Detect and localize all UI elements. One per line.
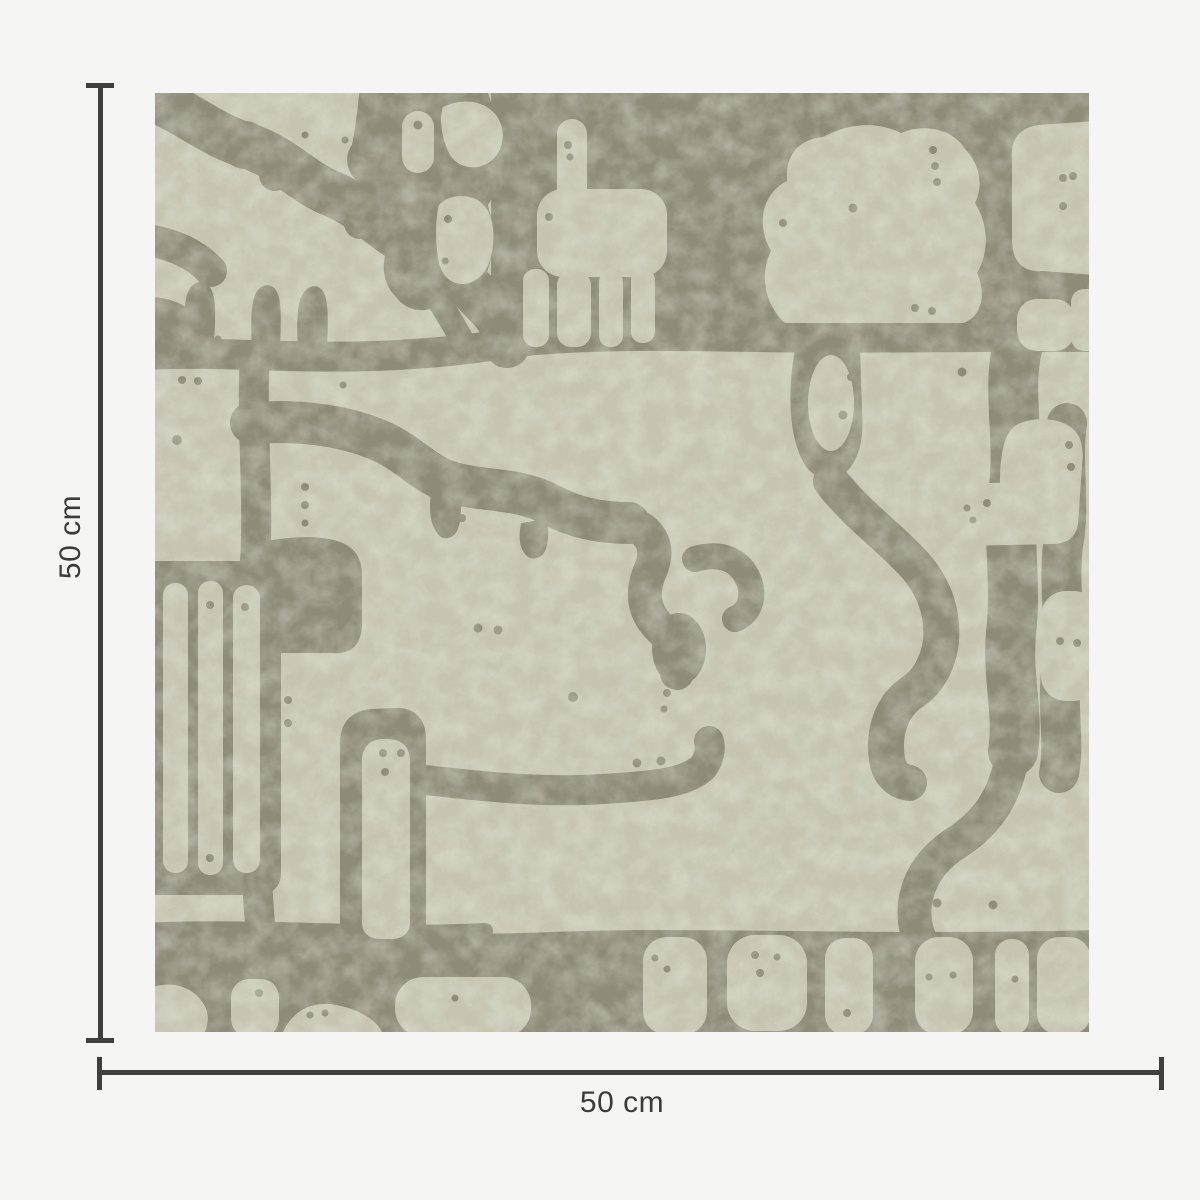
- width-dimension-right-cap: [1159, 1057, 1164, 1090]
- page-background: 50 cm 50 cm: [0, 0, 1200, 1200]
- height-dimension-line: [98, 85, 103, 1040]
- width-dimension-label: 50 cm: [580, 1086, 664, 1120]
- swatch-pattern-svg: [155, 93, 1089, 1032]
- wallpaper-swatch-image: [155, 93, 1089, 1032]
- width-dimension-line: [97, 1070, 1164, 1075]
- width-dimension-left-cap: [97, 1057, 102, 1090]
- height-dimension-label: 50 cm: [54, 495, 88, 579]
- height-dimension-bottom-cap: [86, 1038, 114, 1043]
- height-dimension-top-cap: [86, 83, 114, 88]
